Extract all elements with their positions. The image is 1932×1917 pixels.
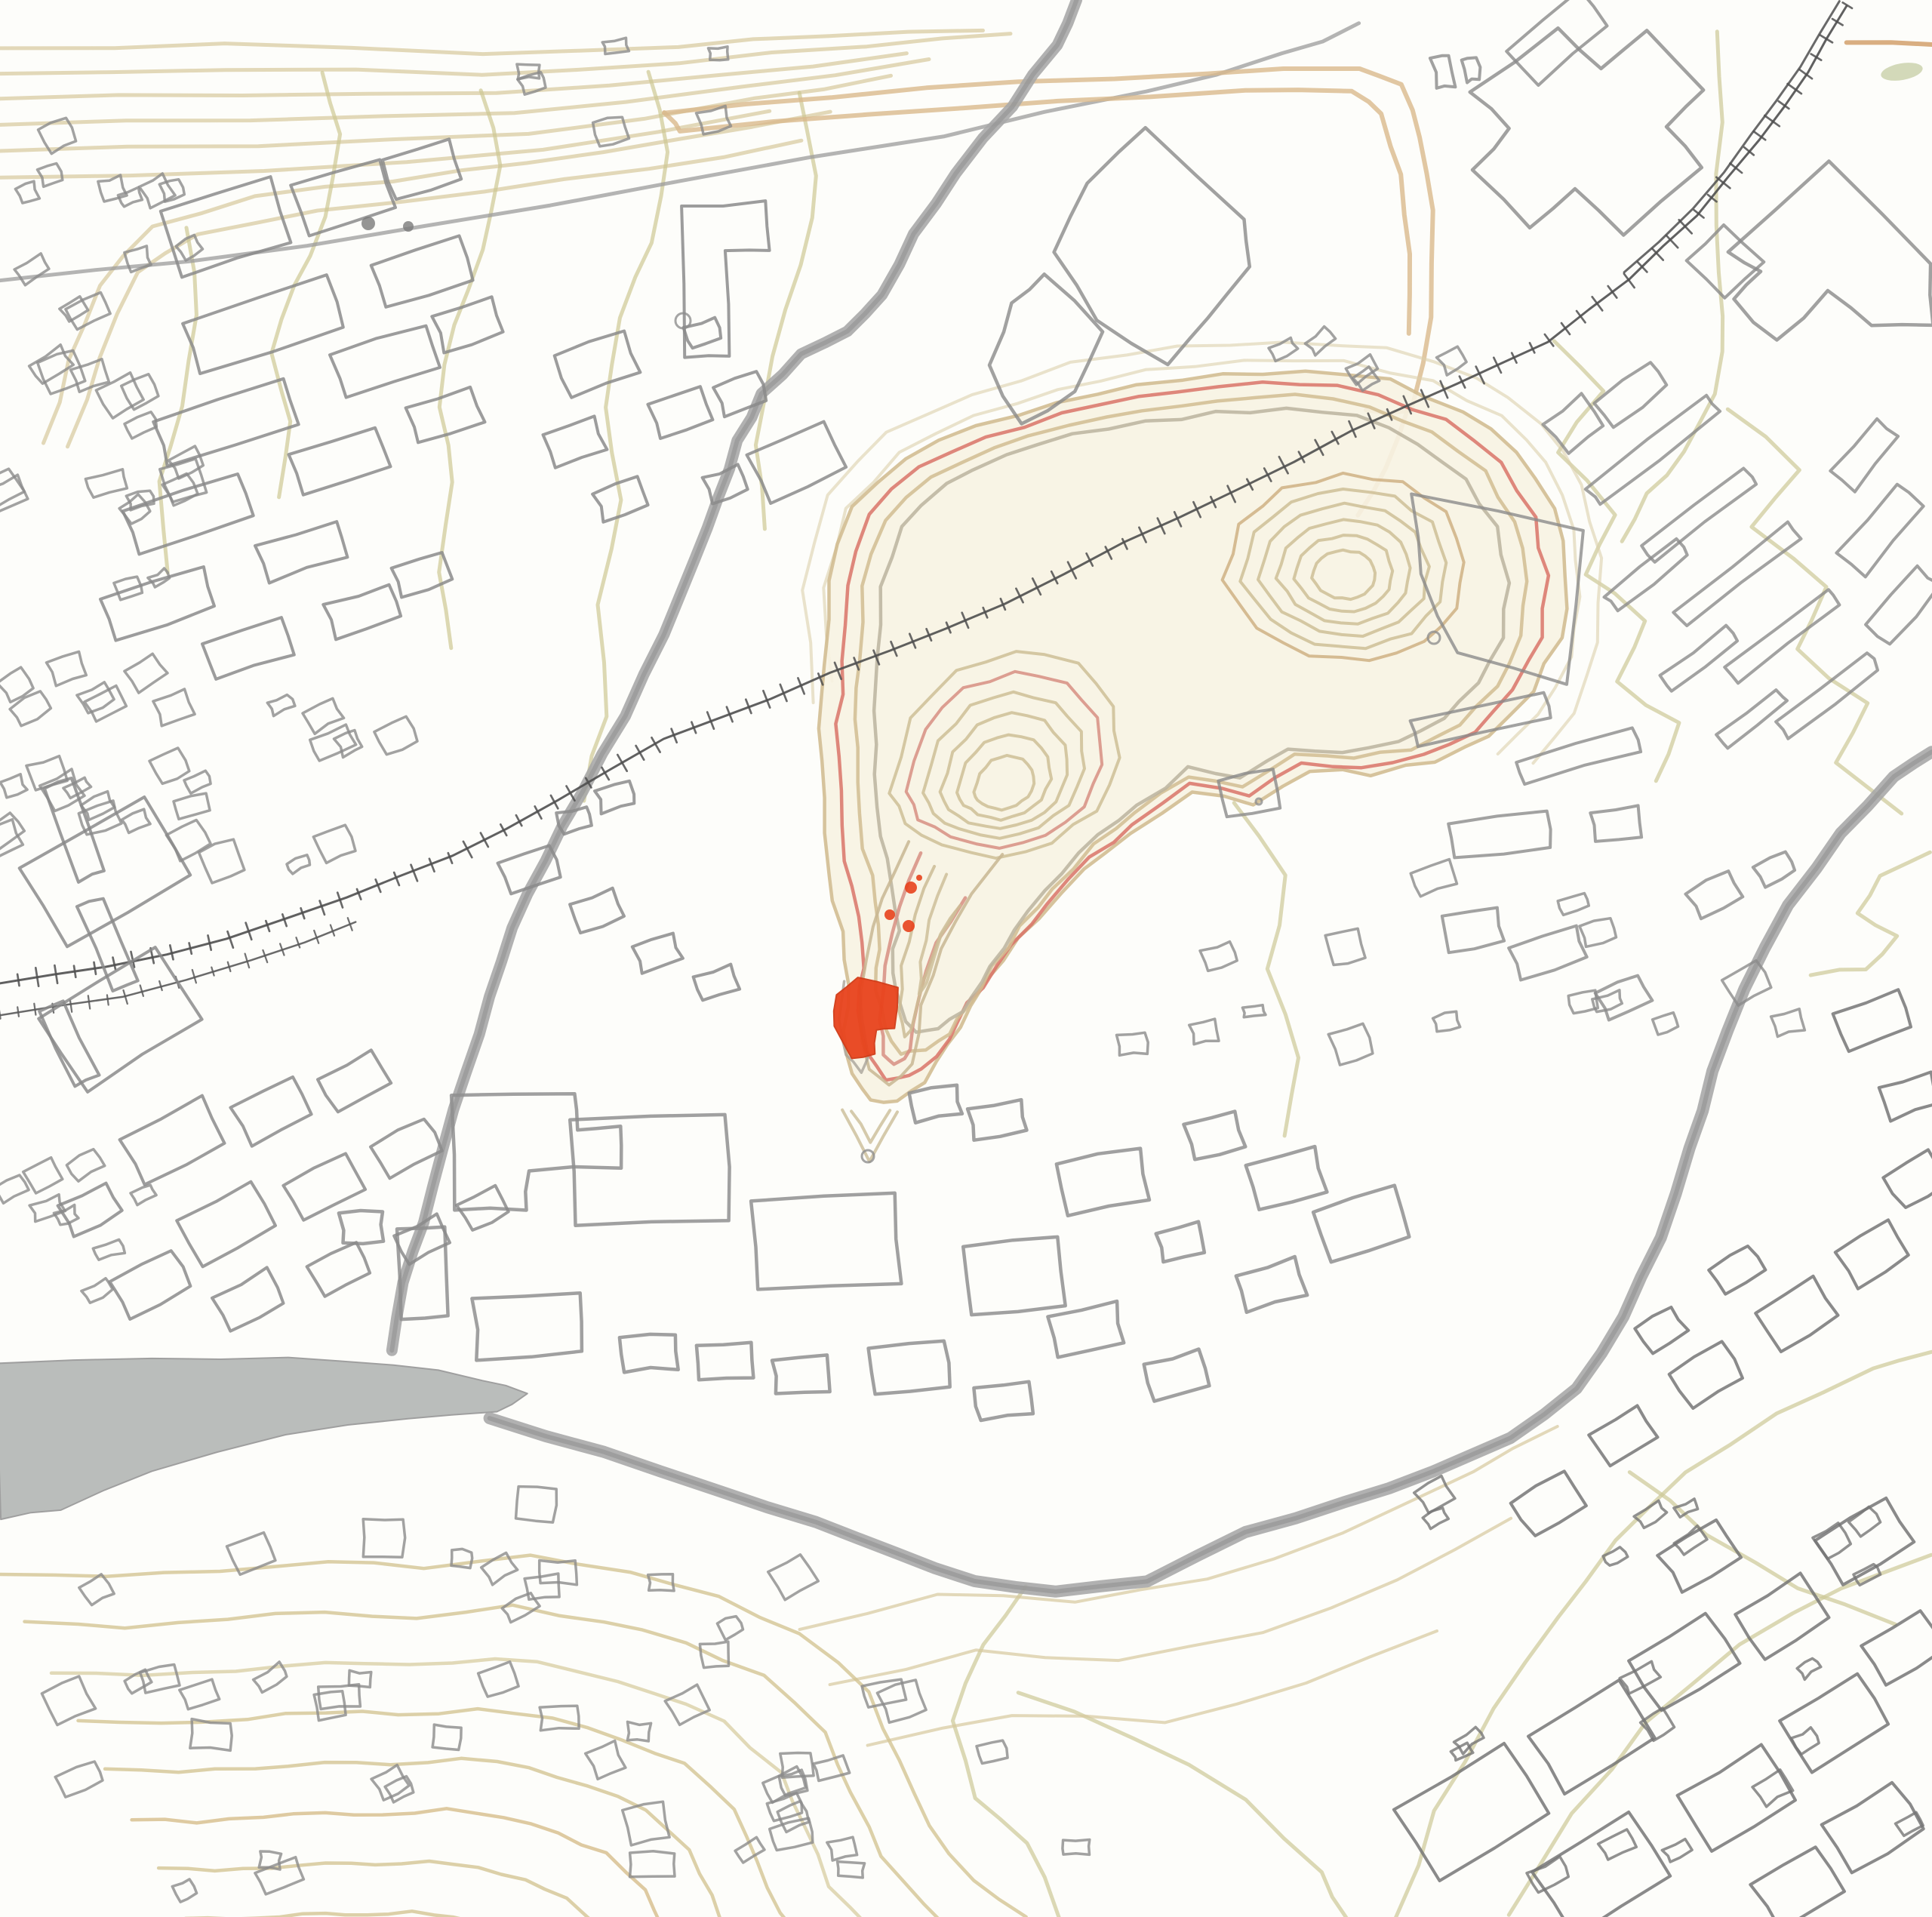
road-b-wide-wedge	[0, 1358, 528, 1520]
bottom-contour-arcs	[800, 1426, 1558, 1746]
cluster-bottomleft-slope	[42, 1487, 849, 1903]
cluster-bottomright-small	[1414, 1476, 1924, 1893]
ridge-tip-contours	[842, 1110, 897, 1162]
west-and-left-blocks	[20, 778, 740, 1331]
cluster-left-belowrail	[0, 1149, 156, 1303]
dark-dot-markers	[361, 217, 414, 232]
topographic-site-map	[0, 0, 1932, 1917]
cluster-upperleft-infill	[174, 695, 417, 883]
orange-edge-line	[1847, 42, 1932, 45]
hill-outer	[819, 371, 1567, 1103]
map-canvas	[0, 0, 1932, 1917]
top-center-L-building	[681, 201, 770, 358]
bottomright-streets	[952, 1352, 1931, 1917]
cluster-midright	[1411, 860, 1804, 1037]
bottomleft-hill-contours	[0, 1555, 1026, 1917]
top-right-diamonds	[989, 28, 1932, 423]
center-south-U-building	[451, 1094, 621, 1210]
cluster-south-of-hill	[1117, 928, 1460, 1065]
green-smudge	[1880, 60, 1924, 83]
